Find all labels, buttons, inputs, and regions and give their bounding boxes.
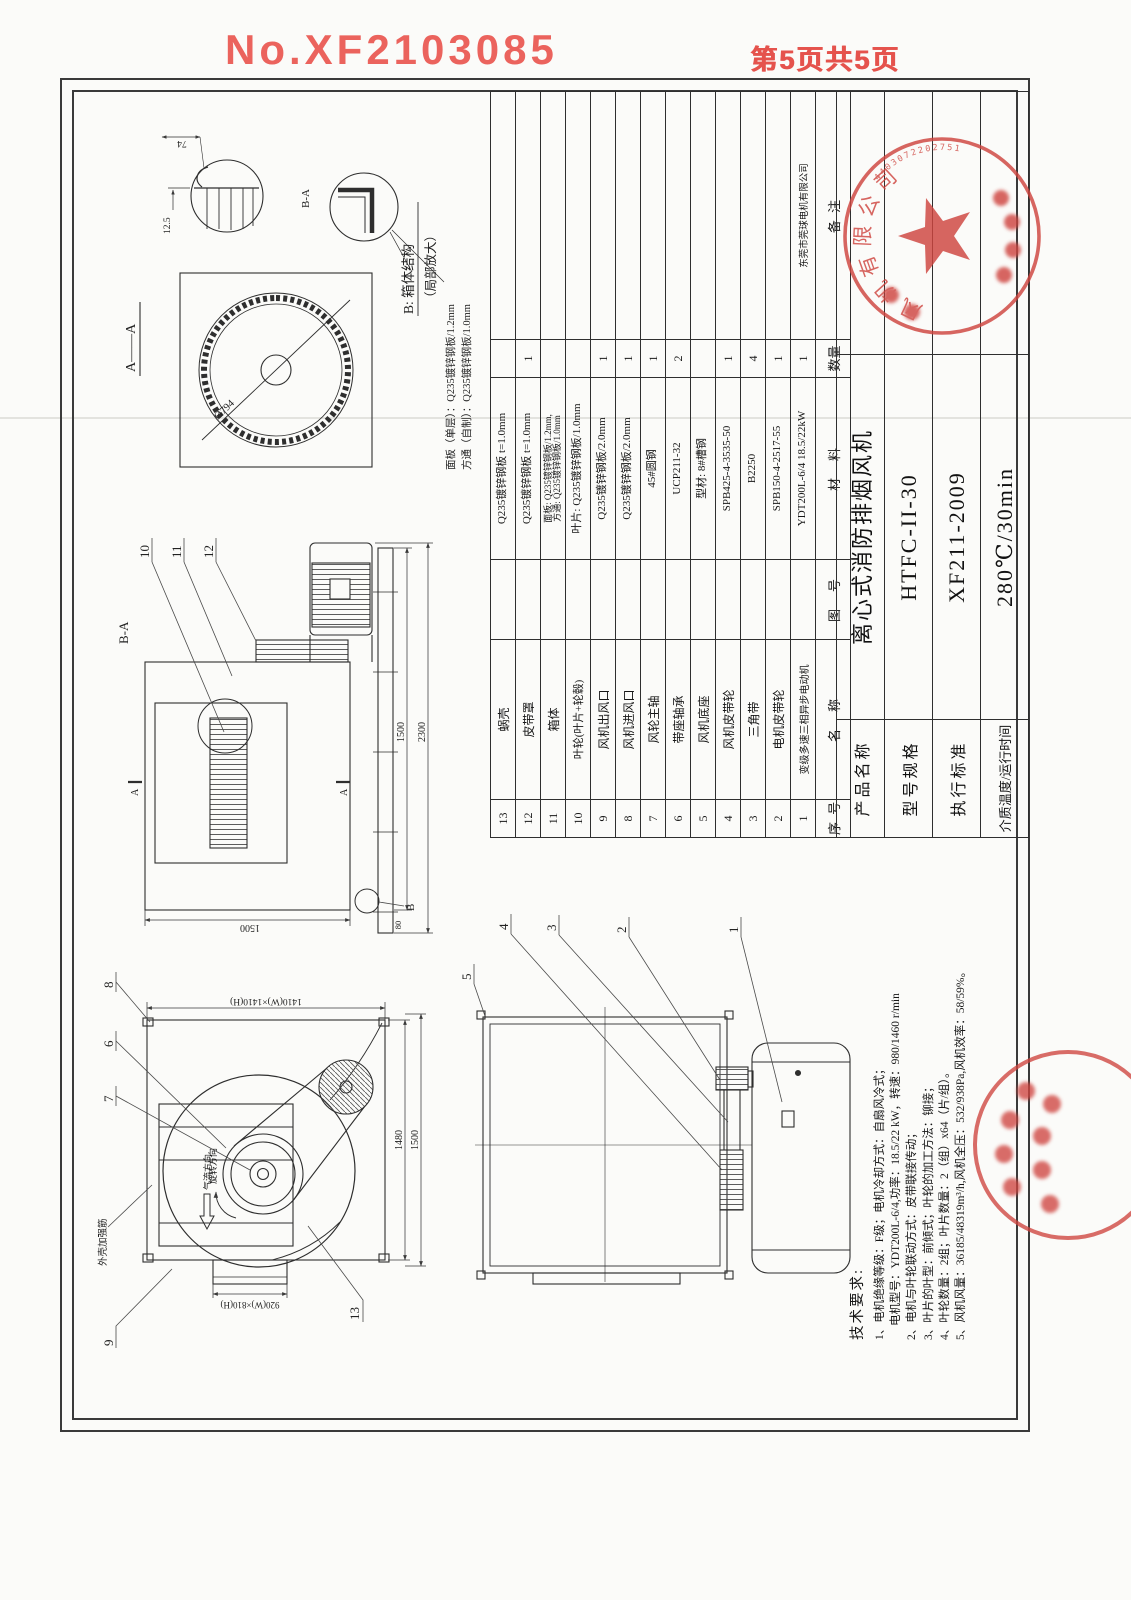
base-rail [378, 548, 393, 933]
dim-height-label: 1500 [240, 922, 260, 933]
section-mark-a-bottom: A [339, 788, 350, 796]
detail-b-title: B: 箱体结构 [401, 244, 416, 314]
section-view-dim-text: 1500 1500 2300 80 [240, 722, 428, 933]
document-number-stamp: No.XF2103085 [225, 26, 558, 74]
callout-6: 6 [101, 1040, 116, 1047]
title-row-standard: 执行标准 XF211-2009 [933, 92, 981, 838]
dim-1480-label: 1480 [394, 1130, 405, 1150]
outlet-duct [213, 1260, 287, 1284]
standard-value: XF211-2009 [933, 355, 981, 720]
table-row: 3三角带B22504 [741, 92, 766, 838]
model-spec-label: 型号规格 [885, 720, 933, 838]
dim-total-label: 2300 [417, 722, 428, 742]
dim-flange-label: 1410(W)×1410(H) [230, 996, 302, 1007]
title-row-product: 产品名称 离心式消防排烟风机 [837, 92, 885, 838]
front-view-labels: 旋转方向 气流方向 外壳加强筋 9 7 6 8 13 [97, 982, 362, 1347]
rotation-direction-arrow [216, 1192, 236, 1218]
empty-cell [933, 92, 981, 355]
empty-cell [837, 92, 885, 355]
callout-8: 8 [101, 982, 116, 989]
table-row: 10叶轮(叶片+轮毂)叶片: Q235镀锌钢板/1.0mm [566, 92, 591, 838]
side-view [475, 1007, 850, 1284]
section-mark-a-top: A [130, 788, 141, 796]
model-spec-value: HTFC-II-30 [885, 355, 933, 720]
table-row: 4风机皮带轮SPB425-4-3535-501 [716, 92, 741, 838]
side-view-leaders [474, 914, 782, 1170]
table-row: 5风机底座型材: 8#槽钢 [691, 92, 716, 838]
technical-requirements-title: 技术要求: [848, 928, 869, 1340]
page-number-stamp: 第5页共5页 [750, 38, 900, 77]
rotated-drawing-sheet: 旋转方向 气流方向 外壳加强筋 9 7 6 8 13 [60, 78, 1030, 1432]
empty-cell [981, 92, 1029, 355]
front-view-dim-text: 1410(W)×1410(H) 920(W)×810(H) 1480 1500 [220, 996, 421, 1310]
callout-7: 7 [101, 1095, 116, 1102]
table-row: 11箱体面板: Q235镀锌钢板/1.2mm, 方通: Q235镀锌钢板/1.0… [541, 92, 566, 838]
technical-requirements: 技术要求: 1、电机绝缘等级：F级；电机冷却方式：自扇风冷式； 电机型号：YDT… [848, 928, 970, 1340]
product-name-label: 产品名称 [837, 720, 885, 838]
corner-detail [140, 173, 444, 376]
note-line-5: 5、风机风量：36185/48319m³/h,风机全压：532/938Pa,风机… [953, 928, 969, 1340]
table-row: 13蜗壳Q235镀锌钢板 t=1.0mm [491, 92, 516, 838]
airflow-direction-label: 气流方向 [202, 1154, 213, 1190]
section-view-dimensions [145, 543, 433, 933]
aa-view-title: A——A [124, 323, 139, 372]
note-line-1b: 电机型号：YDT200L-6/4,功率：18.5/22 kW，转速：980/14… [888, 928, 904, 1340]
callout-2: 2 [614, 927, 629, 934]
casing-rib-label: 外壳加强筋 [97, 1218, 109, 1266]
detail-b-subtitle: （局部放大） [423, 229, 438, 304]
detail-b-tube-note: 方通（自制）：Q235镀锌钢板/1.0mm [460, 304, 473, 470]
impeller-section-aa [180, 273, 372, 467]
corner-joint-ring [355, 889, 379, 913]
title-row-model: 型号规格 HTFC-II-30 [885, 92, 933, 838]
motor-pulley-side [716, 1067, 748, 1090]
table-row: 7风轮主轴45#圆钢1 [641, 92, 666, 838]
title-row-temperature: 介质温度/运行时间 280℃/30min [981, 92, 1029, 838]
fan-pulley [223, 1134, 303, 1214]
callout-5: 5 [459, 974, 474, 981]
belt-guard [256, 640, 348, 662]
callout-12: 12 [201, 545, 216, 558]
callout-4: 4 [496, 923, 511, 930]
empty-cell [885, 92, 933, 355]
section-view-title: B-A [116, 621, 131, 644]
medium-temp-value: 280℃/30min [981, 355, 1029, 720]
dim-80-label: 80 [393, 921, 403, 930]
callout-9: 9 [101, 1340, 116, 1347]
note-line-2: 2、电机与叶轮联动方式：皮带联接传动； [904, 928, 920, 1340]
motor-pulley [319, 1060, 373, 1114]
callout-3: 3 [544, 925, 559, 932]
dim-74-label: 74 [177, 138, 187, 148]
standard-label: 执行标准 [933, 720, 981, 838]
table-row: 1变级多速三相异步电动机YDT200L-6/4 18.5/22kW1东莞市莞球电… [791, 92, 816, 838]
note-line-4: 4、叶轮数量：2组；叶片数量：2（组）x64（片/组）。 [937, 928, 953, 1340]
callout-13: 13 [347, 1307, 362, 1320]
medium-temp-label: 介质温度/运行时间 [981, 720, 1029, 838]
dim-1500-label: 1500 [410, 1130, 421, 1150]
front-view [143, 1018, 389, 1284]
blade-detail [162, 137, 263, 232]
note-line-1: 1、电机绝缘等级：F级；电机冷却方式：自扇风冷式； [872, 928, 888, 1340]
dim-box-label: 1500 [396, 722, 407, 742]
table-row: 2电机皮带轮SPB150-4-2517-551 [766, 92, 791, 838]
callout-1: 1 [726, 927, 741, 934]
dim-12-5-label: 12.5 [163, 217, 173, 234]
parts-list: 13蜗壳Q235镀锌钢板 t=1.0mm 12皮带罩Q235镀锌钢板 t=1.0… [490, 91, 851, 838]
side-view-labels: 5 4 3 2 1 [459, 923, 741, 980]
blade-detail-title: B-A [300, 189, 312, 208]
detail-b-panel-note: 面板（单层）：Q235镀锌钢板/1.2mm [444, 304, 457, 470]
product-name-value: 离心式消防排烟风机 [837, 355, 885, 720]
table-row: 12皮带罩Q235镀锌钢板 t=1.0mm1 [516, 92, 541, 838]
fan-pulley-side [720, 1150, 743, 1210]
table-row: 9风机出风口Q235镀锌钢板/2.0mm1 [591, 92, 616, 838]
table-row: 6带座轴承UCP211-322 [666, 92, 691, 838]
impeller-section [210, 718, 247, 848]
title-block: 产品名称 离心式消防排烟风机 型号规格 HTFC-II-30 执行标准 XF21… [836, 91, 1029, 838]
airflow-direction-arrow [200, 1194, 214, 1229]
table-row: 8风机进风口Q235镀锌钢板/2.0mm1 [616, 92, 641, 838]
callout-11: 11 [169, 545, 184, 558]
scanned-drawing-page: No.XF2103085 第5页共5页 [0, 0, 1131, 1600]
callout-10: 10 [137, 545, 152, 558]
note-line-3: 3、叶片的叶型：前倾式；叶轮的加工方法：铆接； [921, 928, 937, 1340]
motor-side [748, 1043, 850, 1273]
dim-outlet-label: 920(W)×810(H) [220, 1300, 279, 1310]
